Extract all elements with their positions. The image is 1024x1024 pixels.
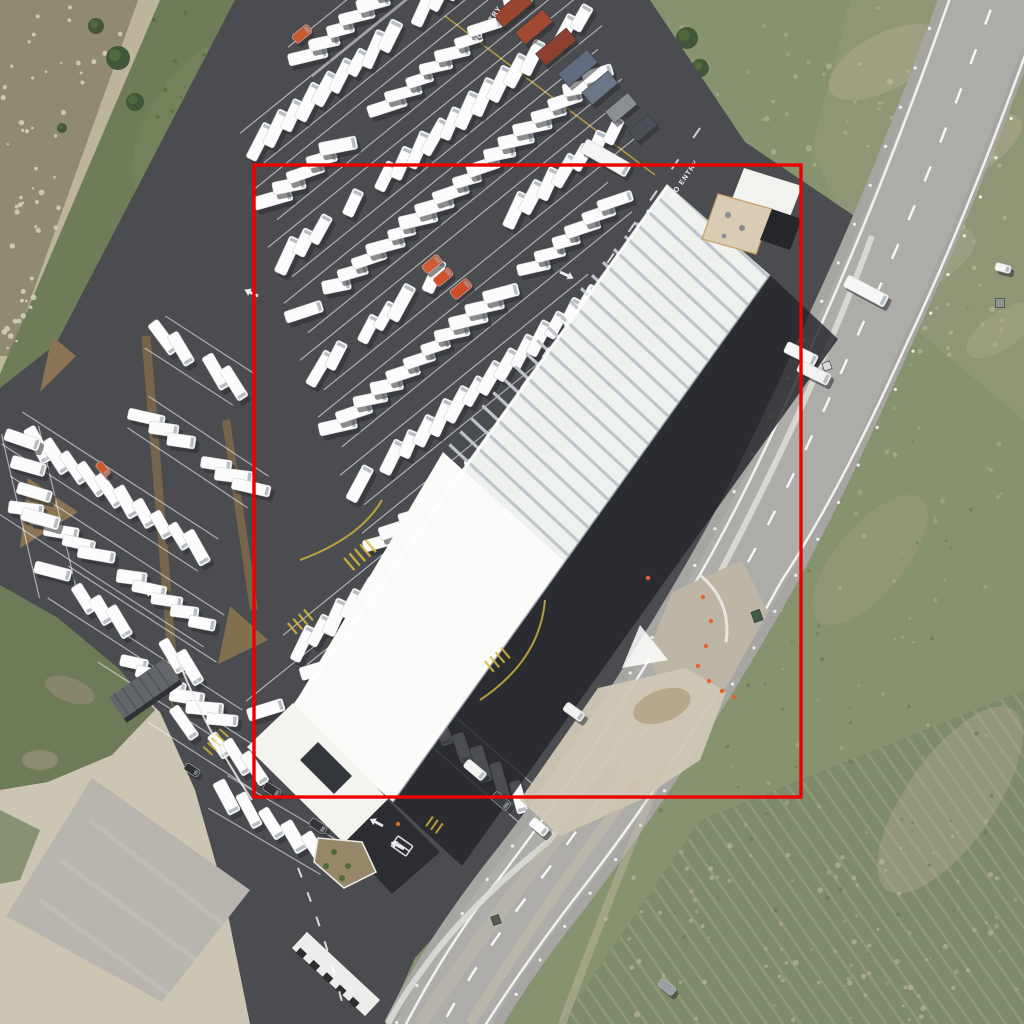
terrain-speckle <box>767 781 771 785</box>
traffic-cone <box>701 595 705 599</box>
terrain-speckle <box>785 961 789 965</box>
terrain-speckle <box>764 682 766 684</box>
roadside-post <box>563 925 566 928</box>
roadside-post <box>713 527 716 530</box>
terrain-speckle <box>994 924 999 929</box>
terrain-speckle <box>827 870 831 874</box>
terrain-speckle <box>10 65 13 68</box>
terrain-speckle <box>881 692 885 696</box>
terrain-speckle <box>784 800 789 805</box>
terrain-speckle <box>786 53 790 57</box>
terrain-speckle <box>34 225 37 228</box>
terrain-speckle <box>629 965 634 970</box>
terrain-speckle <box>863 994 867 998</box>
terrain-speckle <box>36 14 40 18</box>
terrain-speckle <box>954 969 959 974</box>
terrain-speckle <box>17 319 22 324</box>
terrain-speckle <box>910 363 913 366</box>
terrain-speckle <box>950 819 953 822</box>
terrain-speckle <box>930 637 934 641</box>
terrain-speckle <box>28 40 31 43</box>
terrain-speckle <box>32 187 34 189</box>
terrain-speckle <box>19 196 23 200</box>
terrain-speckle <box>865 831 868 834</box>
terrain-speckle <box>822 73 825 76</box>
terrain-speckle <box>996 495 1001 500</box>
terrain-speckle <box>765 812 768 815</box>
terrain-speckle <box>773 1004 776 1007</box>
terrain-speckle <box>892 579 896 583</box>
terrain-speckle <box>916 541 919 544</box>
terrain-speckle <box>791 641 793 643</box>
terrain-speckle <box>39 190 45 196</box>
terrain-speckle <box>817 624 820 627</box>
terrain-speckle <box>847 980 852 985</box>
terrain-speckle <box>8 333 14 339</box>
island-plant <box>339 875 345 881</box>
traffic-cone <box>709 619 713 623</box>
terrain-speckle <box>662 974 666 978</box>
terrain-speckle <box>868 953 870 955</box>
terrain-speckle <box>857 62 861 66</box>
terrain-speckle <box>793 74 798 79</box>
terrain-speckle <box>838 887 843 892</box>
terrain-speckle <box>840 855 844 859</box>
terrain-speckle <box>856 884 859 887</box>
terrain-speckle <box>906 70 909 73</box>
terrain-speckle <box>1003 216 1007 220</box>
roadside-post <box>911 350 914 353</box>
terrain-speckle <box>949 273 951 275</box>
terrain-speckle <box>837 585 842 590</box>
terrain-speckle <box>31 294 37 300</box>
terrain-speckle <box>764 946 768 950</box>
terrain-speckle <box>995 876 999 880</box>
roadside-post <box>752 646 755 649</box>
island-plant <box>331 849 337 855</box>
roadside-post <box>894 388 897 391</box>
tree-highlight <box>58 124 63 129</box>
terrain-speckle <box>152 18 157 23</box>
tree-highlight <box>679 30 690 41</box>
courtyard-table <box>725 212 731 218</box>
terrain-speckle <box>163 87 168 92</box>
terrain-speckle <box>780 948 782 950</box>
roadside-post <box>816 538 819 541</box>
terrain-speckle <box>947 353 951 357</box>
terrain-speckle <box>183 11 187 15</box>
terrain-speckle <box>694 1017 698 1021</box>
terrain-speckle <box>986 467 989 470</box>
terrain-speckle <box>984 734 987 737</box>
terrain-speckle <box>19 120 24 125</box>
terrain-speckle <box>900 847 903 850</box>
terrain-speckle <box>813 163 816 166</box>
terrain-speckle <box>54 134 57 137</box>
terrain-speckle <box>972 240 975 243</box>
terrain-speckle <box>886 983 889 986</box>
terrain-speckle <box>183 86 185 88</box>
terrain-speckle <box>932 851 935 854</box>
terrain-speckle <box>695 910 699 914</box>
terrain-speckle <box>894 638 897 641</box>
terrain-speckle <box>631 876 635 880</box>
terrain-speckle <box>1000 319 1004 323</box>
terrain-speckle <box>806 60 811 65</box>
terrain-speckle <box>952 909 955 912</box>
terrain-speckle <box>1000 492 1003 495</box>
terrain-speckle <box>926 723 930 727</box>
terrain-speckle <box>956 880 959 883</box>
roadside-post <box>869 184 872 187</box>
terrain-speckle <box>29 306 32 309</box>
terrain-speckle <box>929 957 932 960</box>
courtyard-table <box>722 234 727 239</box>
roadside-post <box>928 27 931 30</box>
terrain-speckle <box>879 859 885 865</box>
roadside-post <box>731 683 734 686</box>
terrain-speckle <box>795 765 798 768</box>
terrain-speckle <box>943 944 948 949</box>
roadside-post <box>979 195 982 198</box>
terrain-speckle <box>930 1017 932 1019</box>
terrain-speckle <box>934 598 938 602</box>
terrain-speckle <box>940 499 945 504</box>
terrain-speckle <box>761 118 764 121</box>
terrain-speckle <box>31 76 34 79</box>
terrain-speckle <box>167 9 169 11</box>
terrain-speckle <box>969 508 973 512</box>
terrain-speckle <box>737 786 739 788</box>
terrain-speckle <box>806 145 812 151</box>
terrain-speckle <box>854 511 859 516</box>
aerial-photo: NO ENTRYNO ENTRY <box>0 0 1024 1024</box>
terrain-speckle <box>835 862 841 868</box>
traffic-cone <box>396 822 400 826</box>
terrain-speckle <box>893 407 896 410</box>
terrain-speckle <box>901 923 903 925</box>
terrain-speckle <box>32 33 36 37</box>
terrain-speckle <box>912 641 915 644</box>
terrain-speckle <box>36 228 41 233</box>
roadside-post <box>794 574 797 577</box>
terrain-speckle <box>999 327 1003 331</box>
roadside-post <box>693 564 696 567</box>
terrain-speckle <box>817 981 821 985</box>
tree-highlight <box>109 49 121 61</box>
terrain-speckle <box>974 336 976 338</box>
terrain-speckle <box>920 1005 926 1011</box>
terrain-speckle <box>21 313 26 318</box>
roadside-post <box>899 106 902 109</box>
terrain-speckle <box>778 975 782 979</box>
terrain-speckle <box>91 59 96 64</box>
terrain-speckle <box>785 112 790 117</box>
terrain-speckle <box>858 684 860 686</box>
terrain-speckle <box>987 930 993 936</box>
terrain-speckle <box>118 32 123 37</box>
roadside-post <box>946 273 949 276</box>
terrain-speckle <box>983 585 987 589</box>
terrain-speckle <box>701 924 705 928</box>
terrain-speckle <box>68 5 72 9</box>
terrain-speckle <box>21 289 26 294</box>
terrain-speckle <box>658 808 662 812</box>
roadside-post <box>837 501 840 504</box>
terrain-speckle <box>782 668 784 670</box>
island-plant <box>323 863 329 869</box>
roadside-post <box>733 490 736 493</box>
terrain-speckle <box>747 71 750 74</box>
terrain-speckle <box>876 6 880 10</box>
terrain-speckle <box>76 61 81 66</box>
terrain-speckle <box>781 707 784 710</box>
terrain-speckle <box>845 985 847 987</box>
terrain-speckle <box>907 705 911 709</box>
roadside-post <box>511 844 514 847</box>
terrain-speckle <box>771 149 777 155</box>
tree-highlight <box>90 20 98 28</box>
terrain-speckle <box>1015 987 1019 991</box>
roadside-post <box>486 878 489 881</box>
terrain-speckle <box>949 546 952 549</box>
terrain-speckle <box>3 85 7 89</box>
terrain-speckle <box>34 167 38 171</box>
terrain-speckle <box>692 898 697 903</box>
terrain-speckle <box>751 884 753 886</box>
terrain-speckle <box>10 243 15 248</box>
terrain-speckle <box>826 63 832 69</box>
terrain-speckle <box>634 1012 640 1018</box>
terrain-speckle <box>781 978 785 982</box>
terrain-speckle <box>993 342 998 347</box>
terrain-speckle <box>25 129 29 133</box>
terrain-speckle <box>180 96 183 99</box>
terrain-speckle <box>1 95 6 100</box>
terrain-speckle <box>6 347 9 350</box>
terrain-speckle <box>901 636 904 639</box>
terrain-speckle <box>951 835 954 838</box>
roadside-post <box>515 993 518 996</box>
terrain-speckle <box>843 920 846 923</box>
terrain-speckle <box>786 853 791 858</box>
terrain-speckle <box>30 276 34 280</box>
terrain-speckle <box>20 299 24 303</box>
terrain-speckle <box>843 130 848 135</box>
terrain-speckle <box>867 971 871 975</box>
terrain-speckle <box>54 225 59 230</box>
terrain-speckle <box>45 70 48 73</box>
terrain-speckle <box>946 346 950 350</box>
terrain-speckle <box>989 468 993 472</box>
terrain-speckle <box>998 950 1000 952</box>
courtyard-table <box>739 225 745 231</box>
terrain-speckle <box>778 921 783 926</box>
vehicle <box>206 712 242 731</box>
terrain-speckle <box>935 307 938 310</box>
roadside-post <box>884 145 887 148</box>
terrain-speckle <box>80 71 83 74</box>
roadside-post <box>929 311 932 314</box>
terrain-speckle <box>901 818 903 820</box>
terrain-speckle <box>919 1014 924 1019</box>
terrain-speckle <box>171 109 175 113</box>
terrain-speckle <box>946 303 949 306</box>
terrain-speckle <box>708 936 711 939</box>
roadside-post <box>539 959 542 962</box>
terrain-speckle <box>956 832 958 834</box>
terrain-speckle <box>849 964 853 968</box>
terrain-speckle <box>1018 871 1020 873</box>
terrain-speckle <box>967 306 969 308</box>
terrain-speckle <box>984 819 989 824</box>
terrain-speckle <box>173 59 178 64</box>
terrain-speckle <box>784 32 789 37</box>
terrain-speckle <box>867 145 870 148</box>
terrain-speckle <box>689 889 694 894</box>
roadside-post <box>614 858 617 861</box>
traffic-cone <box>732 695 736 699</box>
terrain-speckle <box>746 683 750 687</box>
roadside-post <box>914 66 917 69</box>
terrain-speckle <box>708 866 713 871</box>
terrain-speckle <box>878 101 882 105</box>
terrain-speckle <box>852 876 856 880</box>
terrain-speckle <box>685 866 689 870</box>
terrain-speckle <box>817 804 821 808</box>
terrain-speckle <box>21 129 24 132</box>
terrain-speckle <box>31 127 34 130</box>
terrain-speckle <box>816 698 819 701</box>
terrain-speckle <box>887 79 893 85</box>
terrain-speckle <box>849 721 852 724</box>
terrain-speckle <box>922 756 924 758</box>
terrain-speckle <box>990 794 994 798</box>
terrain-speckle <box>817 887 823 893</box>
roadside-post <box>820 300 823 303</box>
terrain-speckle <box>908 930 912 934</box>
terrain-speckle <box>730 766 732 768</box>
terrain-speckle <box>774 908 779 913</box>
terrain-speckle <box>855 914 859 918</box>
terrain-speckle <box>911 821 914 824</box>
terrain-speckle <box>820 657 824 661</box>
terrain-speckle <box>917 426 921 430</box>
terrain-speckle <box>908 984 914 990</box>
terrain-speckle <box>816 632 819 635</box>
terrain-speckle <box>848 760 852 764</box>
terrain-speckle <box>791 1017 795 1021</box>
terrain-speckle <box>984 830 988 834</box>
terrain-speckle <box>893 453 898 458</box>
terrain-speckle <box>14 209 19 214</box>
terrain-speckle <box>80 81 84 85</box>
terrain-speckle <box>909 617 912 620</box>
terrain-speckle <box>949 330 953 334</box>
terrain-speckle <box>933 519 938 524</box>
terrain-speckle <box>897 892 901 896</box>
roadside-post <box>461 912 464 915</box>
terrain-speckle <box>1014 898 1018 902</box>
terrain-speckle <box>901 551 903 553</box>
terrain-speckle <box>917 994 921 998</box>
terrain-speckle <box>640 910 643 913</box>
terrain-speckle <box>15 340 18 343</box>
terrain-speckle <box>7 143 9 145</box>
terrain-speckle <box>877 106 881 110</box>
terrain-speckle <box>61 110 66 115</box>
dirt-mound <box>22 750 58 770</box>
terrain-speckle <box>876 928 879 931</box>
terrain-speckle <box>834 950 838 954</box>
terrain-speckle <box>825 896 830 901</box>
terrain-speckle <box>726 745 730 749</box>
terrain-speckle <box>861 974 866 979</box>
terrain-speckle <box>934 516 937 519</box>
terrain-speckle <box>885 449 890 454</box>
tree-highlight <box>128 95 137 104</box>
terrain-speckle <box>908 1018 911 1021</box>
terrain-speckle <box>894 959 899 964</box>
terrain-speckle <box>884 869 887 872</box>
terrain-speckle <box>851 939 857 945</box>
roadside-post <box>837 261 840 264</box>
terrain-speckle <box>945 539 948 542</box>
terrain-speckle <box>716 93 719 96</box>
terrain-speckle <box>749 837 753 841</box>
roadside-post <box>994 156 997 159</box>
terrain-speckle <box>810 948 813 951</box>
terrain-speckle <box>771 100 775 104</box>
terrain-speckle <box>679 980 683 984</box>
terrain-speckle <box>858 490 863 495</box>
utility-box <box>996 299 1005 308</box>
roadside-post <box>651 636 654 639</box>
terrain-speckle <box>752 869 754 871</box>
terrain-speckle <box>807 569 810 572</box>
terrain-speckle <box>927 863 931 867</box>
terrain-speckle <box>911 830 913 832</box>
terrain-speckle <box>764 964 768 968</box>
terrain-speckle <box>846 120 849 123</box>
terrain-speckle <box>850 1017 852 1019</box>
roadside-post <box>857 464 860 467</box>
terrain-speckle <box>994 915 998 919</box>
terrain-speckle <box>944 578 947 581</box>
roadside-post <box>963 234 966 237</box>
terrain-speckle <box>674 911 676 913</box>
terrain-speckle <box>743 823 747 827</box>
terrain-speckle <box>637 959 642 964</box>
terrain-speckle <box>951 986 955 990</box>
terrain-speckle <box>682 935 686 939</box>
roadside-post <box>1010 117 1013 120</box>
terrain-speckle <box>717 897 720 900</box>
terrain-speckle <box>862 533 867 538</box>
terrain-speckle <box>702 980 707 985</box>
terrain-speckle <box>4 326 10 332</box>
traffic-cone <box>646 576 650 580</box>
terrain-speckle <box>727 843 733 849</box>
screenshot-root: NO ENTRYNO ENTRY <box>0 0 1024 1024</box>
terrain-speckle <box>35 200 39 204</box>
terrain-speckle <box>762 24 766 28</box>
terrain-speckle <box>716 875 720 879</box>
terrain-speckle <box>911 440 913 442</box>
terrain-speckle <box>849 707 851 709</box>
terrain-speckle <box>679 850 684 855</box>
terrain-speckle <box>709 875 714 880</box>
